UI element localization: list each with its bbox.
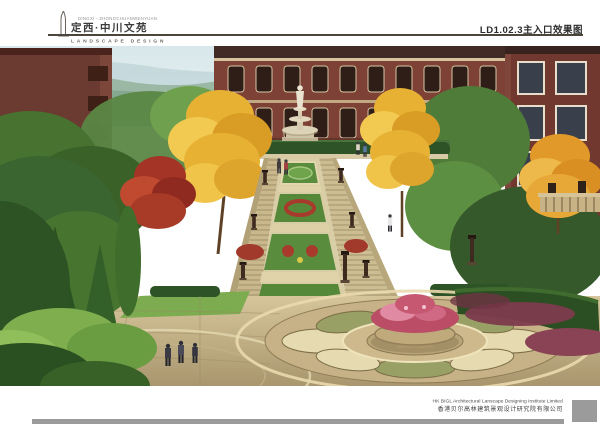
footer-bar — [32, 419, 564, 424]
sheet-number-label: LD1.02.3主入口效果图 — [480, 22, 583, 36]
credit-line-chinese: 香港贝尔高林建筑景观设计研究院有限公司 — [438, 404, 563, 413]
presentation-sheet: DINGXI - ZHONGCHUANWENYUAN 定西·中川文苑 LANDS… — [0, 0, 600, 424]
credit-line-english: HK BIGL Architectural Lanscape Designing… — [433, 398, 563, 404]
footer-corner-square — [572, 400, 597, 422]
landscape-design-subtitle: LANDSCAPE DESIGN — [71, 38, 166, 44]
project-title: 定西·中川文苑 — [71, 20, 148, 35]
entrance-rendering — [0, 46, 600, 386]
